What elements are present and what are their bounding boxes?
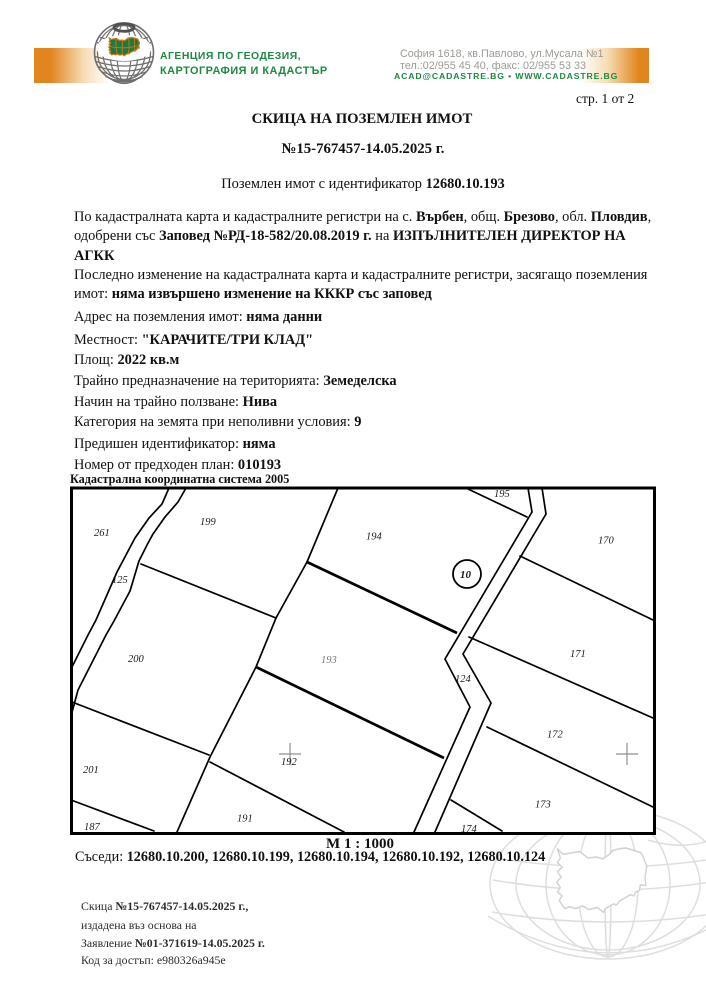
svg-text:200: 200 [128,654,145,665]
svg-text:173: 173 [535,800,551,811]
svg-text:201: 201 [83,765,99,776]
svg-text:170: 170 [598,536,615,547]
svg-text:172: 172 [547,730,564,741]
svg-text:191: 191 [237,814,253,825]
svg-text:174: 174 [461,824,478,835]
svg-text:187: 187 [84,822,101,833]
svg-text:195: 195 [494,489,510,500]
svg-text:125: 125 [112,575,128,586]
svg-text:171: 171 [570,649,586,660]
svg-text:194: 194 [366,532,383,543]
svg-text:10: 10 [460,569,472,581]
svg-text:124: 124 [455,674,472,685]
svg-text:261: 261 [94,528,110,539]
svg-text:193: 193 [321,655,337,666]
svg-text:199: 199 [200,517,217,528]
svg-text:192: 192 [281,757,298,768]
